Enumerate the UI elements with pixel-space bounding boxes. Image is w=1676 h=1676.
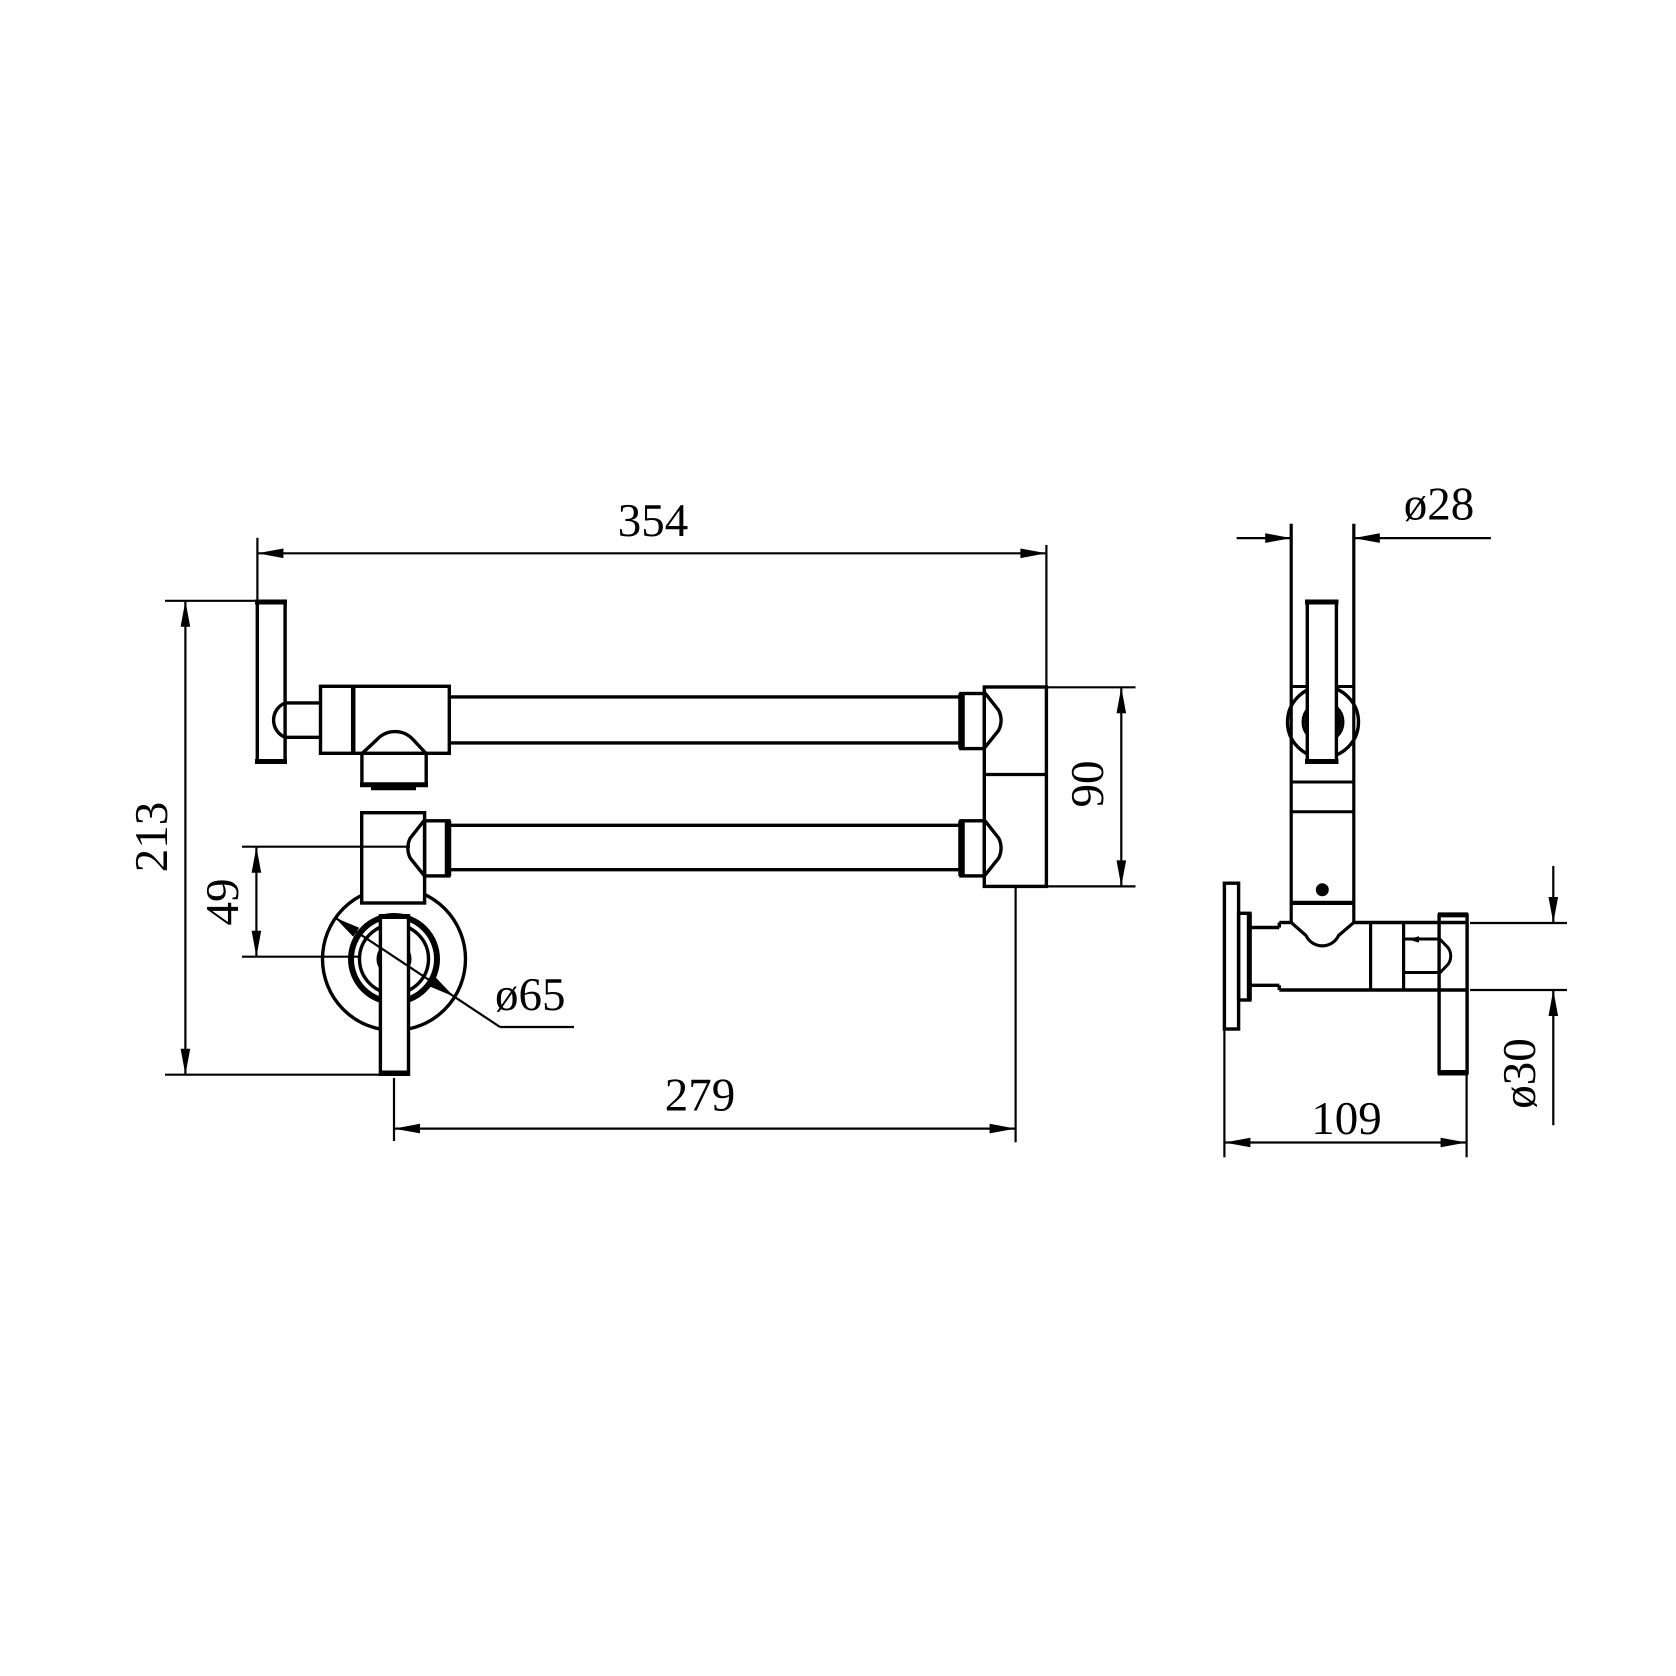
svg-text:213: 213 xyxy=(126,802,178,873)
svg-text:ø65: ø65 xyxy=(495,969,566,1021)
svg-text:ø30: ø30 xyxy=(1494,1038,1546,1109)
svg-text:49: 49 xyxy=(197,879,249,926)
svg-text:279: 279 xyxy=(665,1070,736,1122)
svg-text:ø28: ø28 xyxy=(1404,479,1475,531)
svg-text:90: 90 xyxy=(1062,761,1114,808)
svg-text:354: 354 xyxy=(618,495,689,547)
svg-text:109: 109 xyxy=(1311,1093,1382,1145)
